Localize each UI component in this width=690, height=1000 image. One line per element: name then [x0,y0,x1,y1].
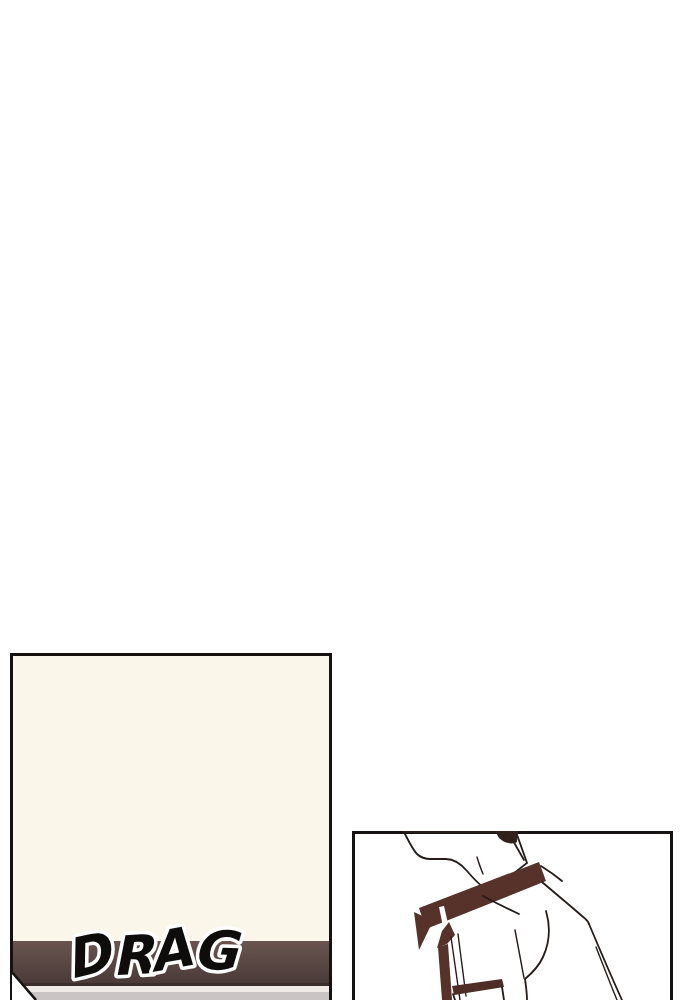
speed-bar [13,941,329,983]
comic-panel-right [352,831,673,1000]
comic-panel-left [10,653,332,1000]
grey-band [13,992,329,1000]
webtoon-page: { "sfx": { "drag": "DRAG" }, "palette": … [0,0,690,1000]
